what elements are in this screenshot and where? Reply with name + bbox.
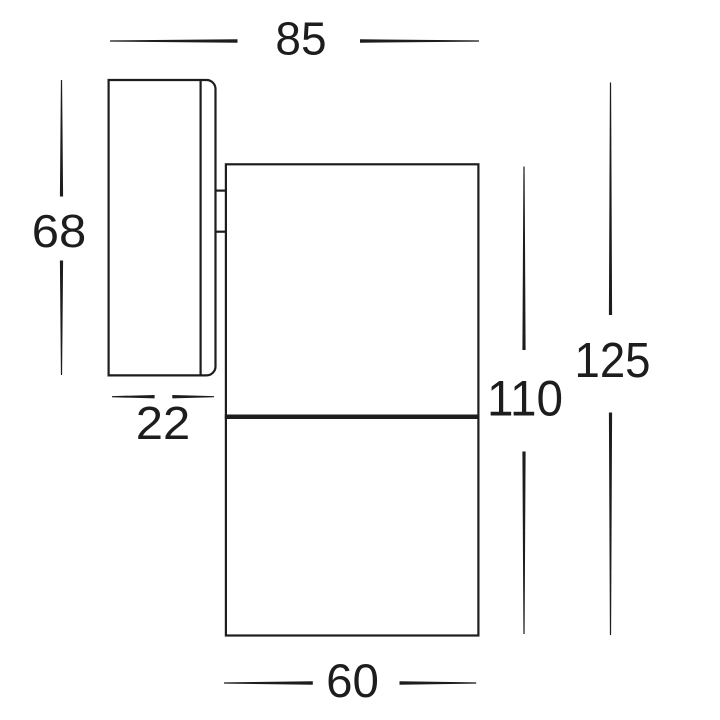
svg-text:85: 85 (275, 13, 326, 65)
svg-text:22: 22 (136, 397, 191, 449)
svg-text:110: 110 (487, 370, 563, 427)
svg-text:68: 68 (32, 205, 87, 257)
svg-text:125: 125 (575, 333, 651, 388)
svg-text:60: 60 (326, 655, 379, 708)
